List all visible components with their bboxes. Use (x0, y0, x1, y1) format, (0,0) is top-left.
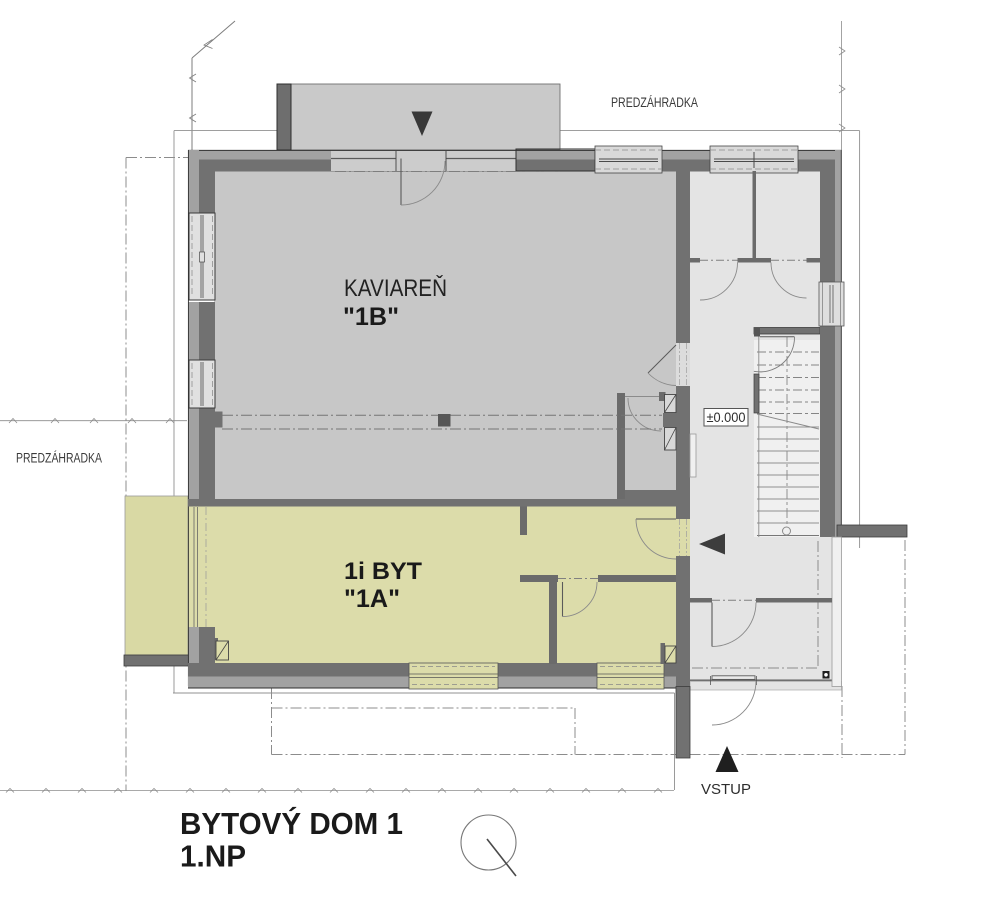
svg-text:1i BYT: 1i BYT (344, 558, 422, 585)
svg-text:VSTUP: VSTUP (701, 781, 751, 798)
svg-text:PREDZÁHRADKA: PREDZÁHRADKA (611, 95, 698, 110)
svg-text:"1A": "1A" (344, 585, 400, 613)
svg-text:BYTOVÝ DOM 1: BYTOVÝ DOM 1 (180, 806, 403, 841)
svg-text:"1B": "1B" (343, 303, 399, 331)
svg-text:KAVIAREŇ: KAVIAREŇ (344, 275, 447, 302)
svg-text:PREDZÁHRADKA: PREDZÁHRADKA (16, 451, 102, 466)
svg-text:1.NP: 1.NP (180, 839, 246, 874)
svg-text:±0.000: ±0.000 (707, 410, 746, 425)
